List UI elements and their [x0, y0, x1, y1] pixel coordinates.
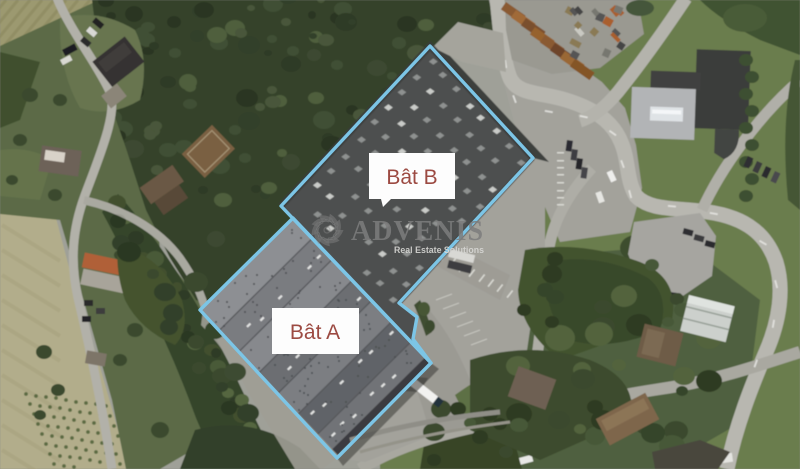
svg-text:Bât A: Bât A [290, 321, 340, 344]
svg-text:Bât B: Bât B [386, 166, 437, 189]
svg-text:Real Estate Solutions: Real Estate Solutions [394, 245, 484, 255]
svg-text:ADVENIS: ADVENIS [351, 216, 484, 247]
